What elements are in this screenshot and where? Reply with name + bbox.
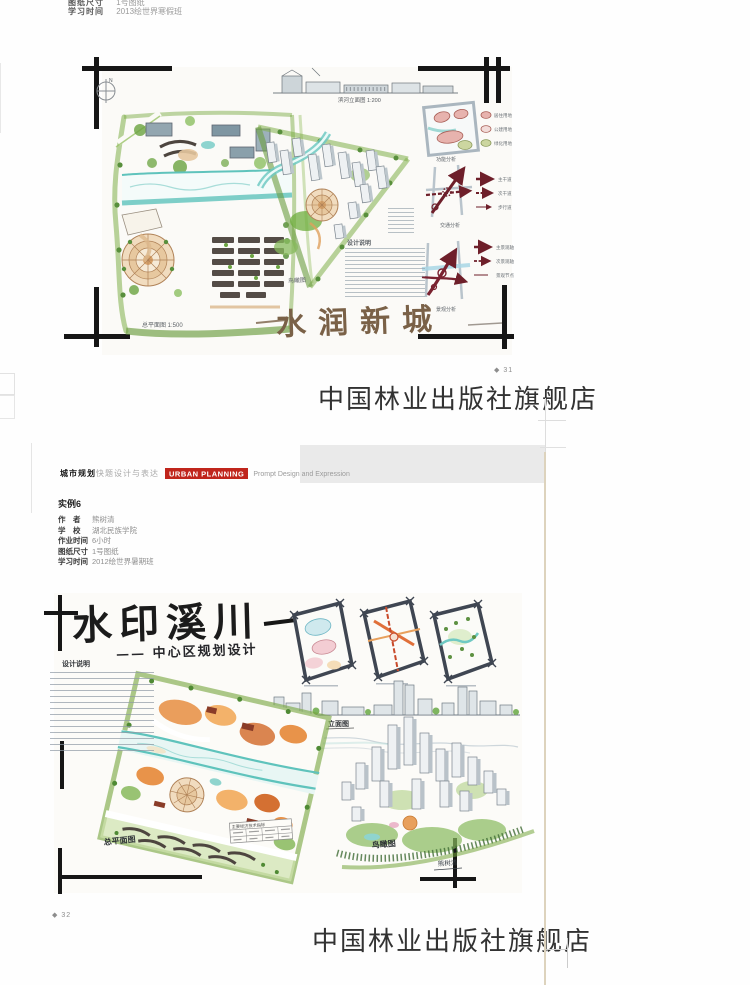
scan-fold-line bbox=[538, 420, 566, 421]
scan-fold-line bbox=[546, 949, 568, 950]
analysis-label-traffic: 交通分析 bbox=[440, 222, 460, 229]
urban-planning-badge: URBAN PLANNING bbox=[165, 468, 248, 480]
series-title-light: 快题设计与表达 bbox=[96, 469, 159, 478]
page-number-32: ◆ 32 bbox=[52, 911, 71, 919]
birdseye-label: 鸟瞰图 bbox=[371, 838, 396, 850]
elevation-label: 滨河立面图 1:200 bbox=[338, 96, 381, 104]
svg-text:绿化用地: 绿化用地 bbox=[494, 140, 512, 147]
analysis-label-zoning: 功能分析 bbox=[436, 156, 456, 163]
scan-fold-line bbox=[567, 938, 568, 968]
scanned-book-page: 图纸尺寸 1号图纸 学习时间 2013绘世界寒假班 bbox=[0, 0, 750, 985]
spec-value: 2013绘世界寒假班 bbox=[116, 7, 182, 16]
svg-text:步行道: 步行道 bbox=[498, 204, 512, 211]
page-number-31: ◆ 31 bbox=[494, 366, 513, 374]
svg-text:次干道: 次干道 bbox=[498, 190, 512, 197]
zoning-legend: 居住用地 公建用地 绿化用地 bbox=[481, 112, 512, 147]
scan-edge-line bbox=[31, 443, 32, 513]
watermark-1: 中国林业出版社旗舰店 bbox=[318, 379, 598, 416]
series-subtitle-en: Prompt Design and Expression bbox=[253, 471, 350, 478]
notes-title: 设计说明 bbox=[62, 659, 90, 668]
scan-binding-line bbox=[544, 452, 546, 985]
design-notes-text bbox=[345, 248, 425, 300]
svg-text:主干道: 主干道 bbox=[498, 176, 512, 183]
scan-artifact-box bbox=[0, 395, 15, 419]
page-2-running-header: 城市规划快题设计与表达URBAN PLANNINGPrompt Design a… bbox=[60, 468, 350, 480]
scan-edge-line bbox=[0, 63, 1, 133]
economic-indicators-text bbox=[388, 208, 414, 236]
watermark-2: 中国林业出版社旗舰店 bbox=[312, 921, 592, 958]
scan-fold-line bbox=[540, 447, 566, 448]
series-title-bold: 城市规划 bbox=[60, 469, 96, 478]
elevation-label: 立面图 bbox=[328, 719, 349, 728]
example-row-school: 学 校湖北民族学院 bbox=[58, 526, 154, 537]
svg-text:次景观轴: 次景观轴 bbox=[496, 258, 514, 265]
scan-fold-line bbox=[545, 398, 546, 454]
example-row-author: 作 者熊树清 bbox=[58, 515, 154, 526]
compass-n-label: N bbox=[109, 78, 113, 84]
example-row-papersize: 图纸尺寸1号图纸 bbox=[58, 547, 154, 558]
example-info-block: 作 者熊树清 学 校湖北民族学院 作业时间6小时 图纸尺寸1号图纸 学习时间20… bbox=[58, 515, 154, 568]
spec-value: 1号图纸 bbox=[116, 0, 144, 7]
example-row-worktime: 作业时间6小时 bbox=[58, 536, 154, 547]
economic-indicator-table: 主要经济技术指标 bbox=[229, 819, 292, 843]
spec-row-study-time: 学习时间 2013绘世界寒假班 bbox=[68, 7, 182, 16]
spec-label: 图纸尺寸 bbox=[68, 0, 104, 7]
artwork-1-title: 水润新城 bbox=[275, 294, 444, 344]
svg-text:居住用地: 居住用地 bbox=[494, 112, 512, 119]
example-title: 实例6 bbox=[58, 497, 81, 510]
svg-text:主景观轴: 主景观轴 bbox=[496, 244, 514, 251]
spec-row-paper-size: 图纸尺寸 1号图纸 bbox=[68, 0, 145, 7]
plan-label: 总平面图 1:500 bbox=[142, 321, 183, 329]
example-row-studytime: 学习时间2012绘世界暑期班 bbox=[58, 557, 154, 568]
notes-title: 设计说明 bbox=[347, 239, 371, 247]
spec-label: 学习时间 bbox=[68, 7, 104, 16]
svg-text:公建用地: 公建用地 bbox=[494, 126, 512, 133]
design-notes-text bbox=[50, 672, 154, 752]
scan-artifact-box bbox=[0, 373, 15, 395]
